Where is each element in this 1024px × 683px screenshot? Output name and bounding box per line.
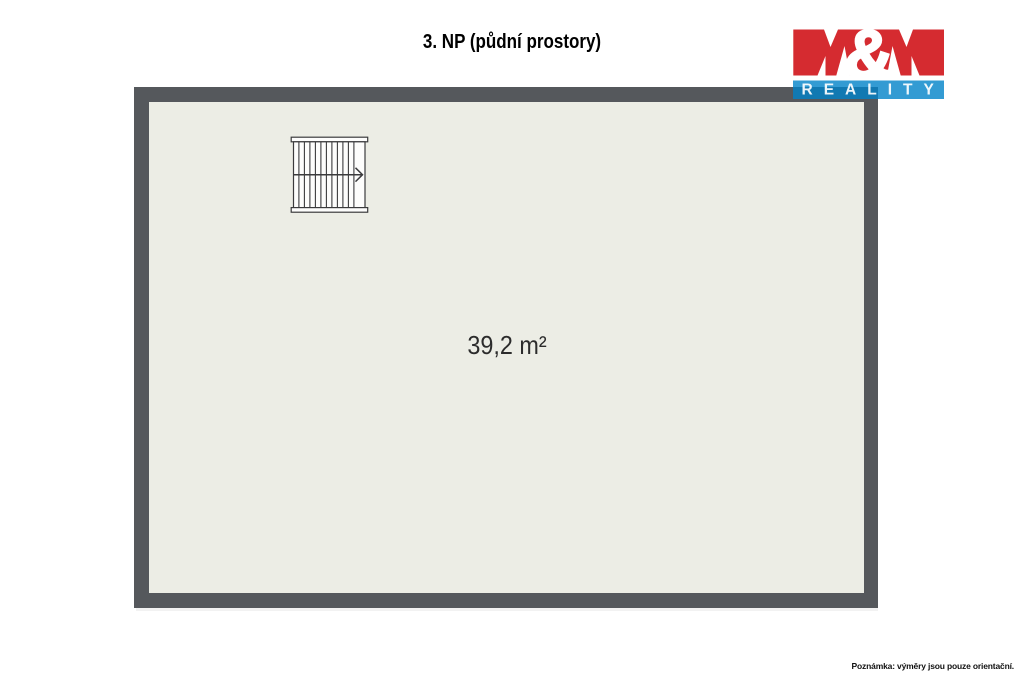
svg-text:REALITY: REALITY (802, 81, 945, 98)
